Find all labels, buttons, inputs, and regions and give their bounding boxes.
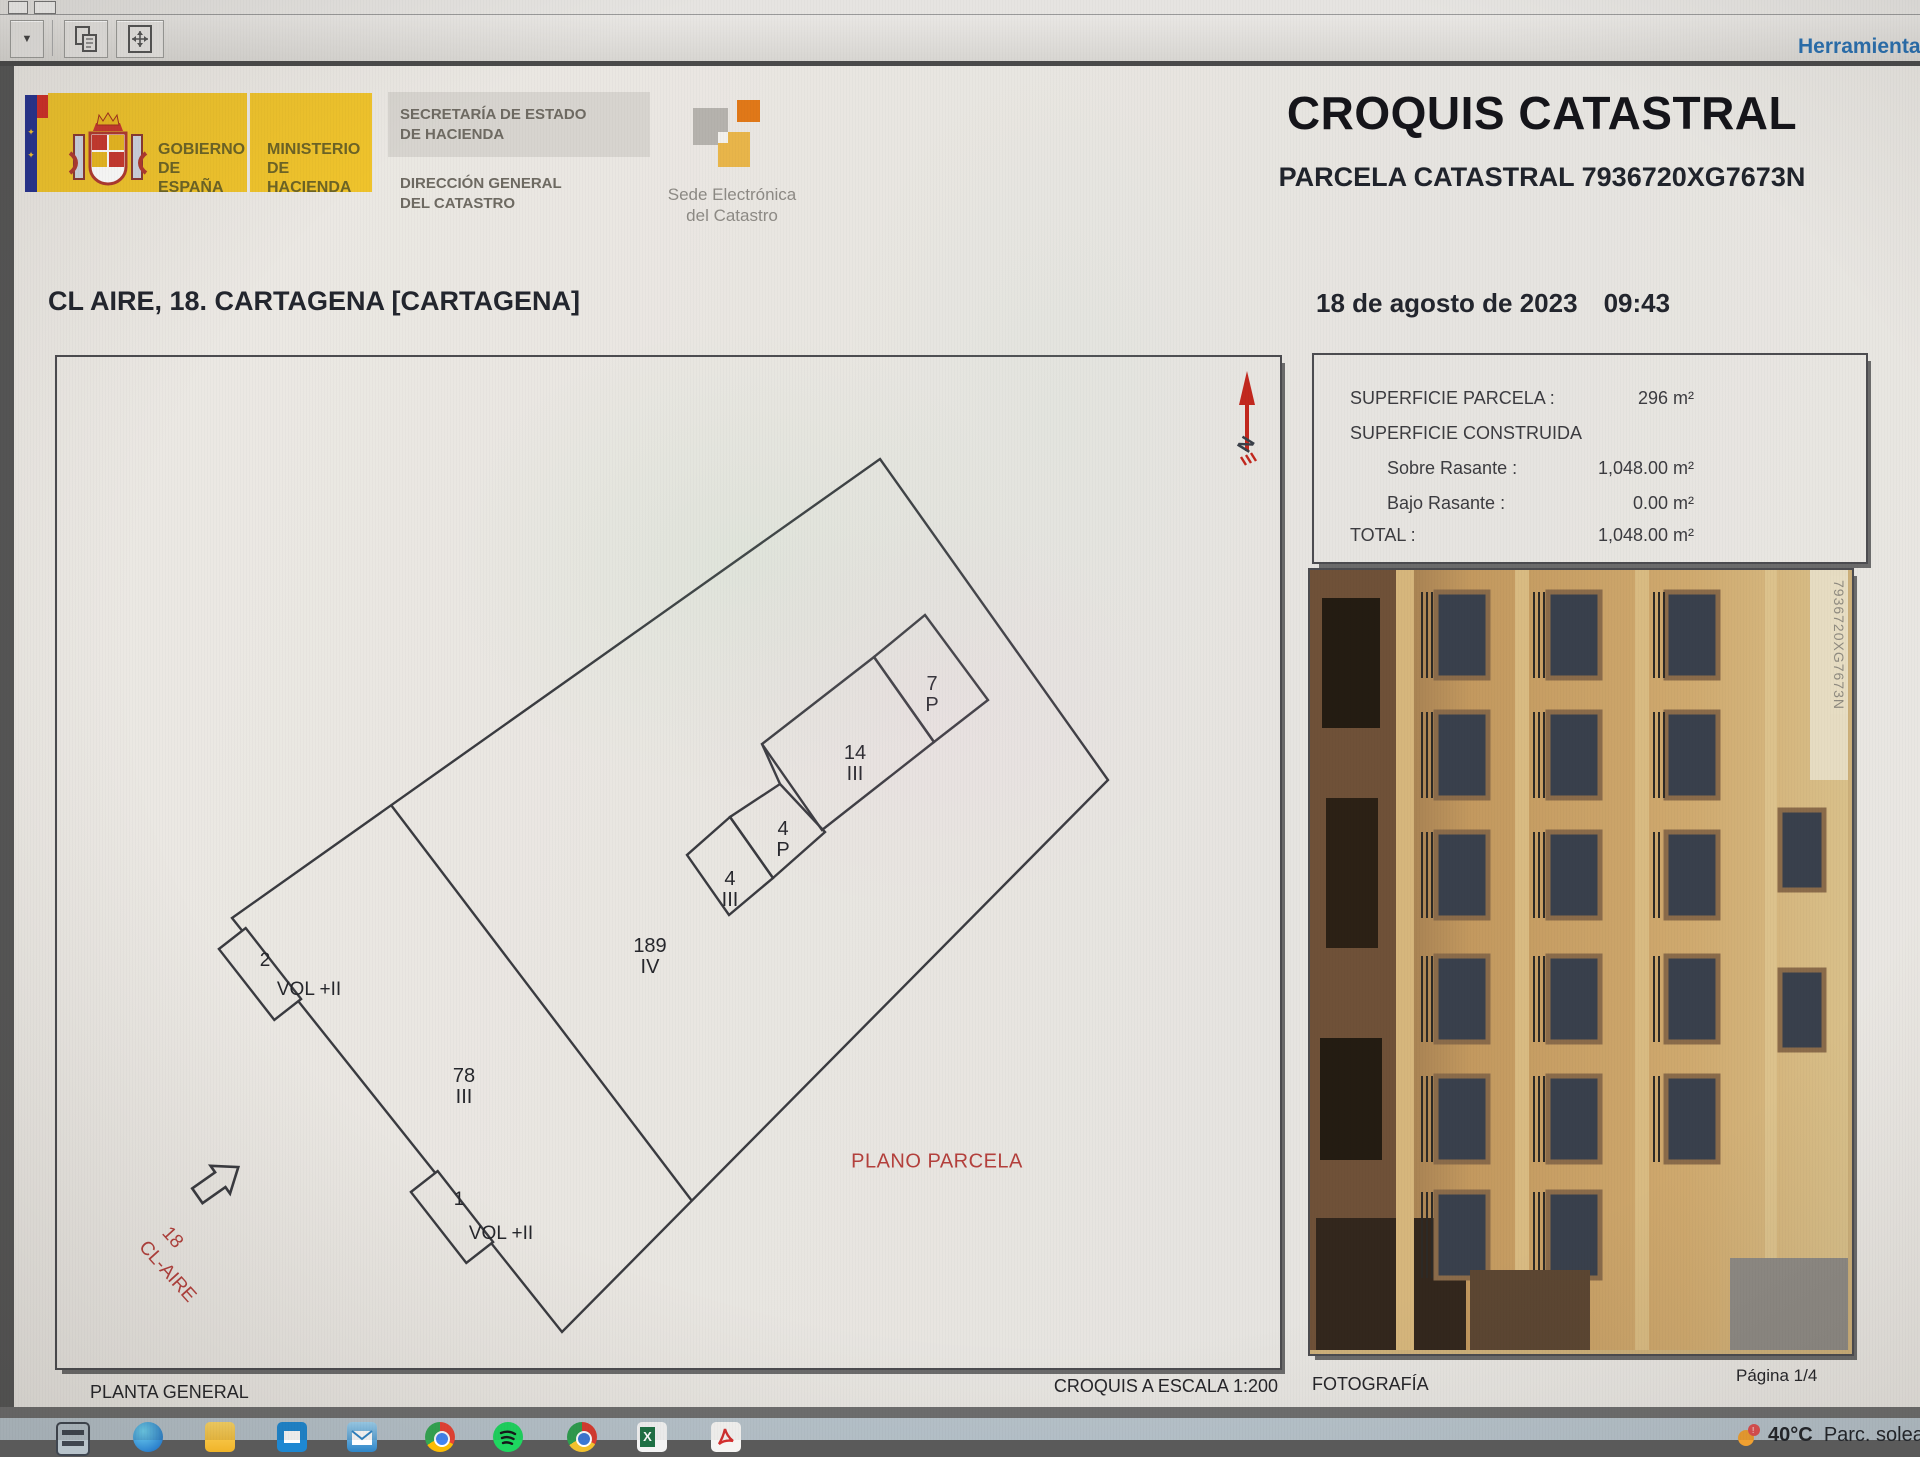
page-scrolling-view-button[interactable]	[64, 20, 108, 58]
fotografia-label: FOTOGRAFÍA	[1312, 1374, 1429, 1395]
surface-info-panel: SUPERFICIE PARCELA : 296 m² SUPERFICIE C…	[1312, 353, 1868, 564]
flag-red-stripe	[37, 95, 48, 118]
document-left-margin	[0, 66, 14, 1408]
scrolling-pages-icon	[72, 25, 100, 53]
herramientas-button[interactable]: Herramientas	[1798, 35, 1920, 59]
page-number: Página 1/4	[1736, 1366, 1817, 1386]
gobierno-panel: GOBIERNODE ESPAÑA	[48, 93, 247, 192]
volume-1-number: 1	[454, 1189, 465, 1211]
background-toolbar-strip	[0, 0, 1920, 15]
bajo-rasante-value: 0.00 m²	[1494, 493, 1694, 514]
edge-browser-icon[interactable]	[133, 1422, 163, 1452]
spain-eu-flag-stripe: ✦✦	[25, 95, 37, 192]
document-title: CROQUIS CATASTRAL	[1164, 86, 1920, 140]
star-icon: ✦	[27, 150, 35, 161]
screen-bottom-strip	[0, 1407, 1920, 1418]
sede-label-line2: del Catastro	[642, 206, 822, 226]
svg-text:!: !	[1752, 1426, 1754, 1435]
plano-parcela-label: PLANO PARCELA	[851, 1151, 1023, 1174]
document-date: 18 de agosto de 2023	[1316, 288, 1578, 318]
total-label: TOTAL :	[1350, 525, 1416, 546]
excel-icon[interactable]: X	[637, 1422, 667, 1452]
fit-page-view-button[interactable]	[116, 20, 164, 58]
volume-1-label: VOL +II	[469, 1223, 533, 1245]
facade-photo	[1310, 570, 1848, 1350]
fit-page-icon	[125, 24, 155, 54]
spotify-icon[interactable]	[493, 1422, 523, 1452]
pdf-toolbar: ▼ Herramientas	[0, 15, 1920, 61]
clipped-icon	[8, 1, 28, 14]
parcel-label-4III: 4 III	[722, 869, 739, 911]
chrome-secondary-icon[interactable]	[567, 1422, 597, 1452]
parcel-plan-drawing	[57, 357, 1280, 1368]
facade-photo-panel: 7936720XG7673N	[1308, 568, 1854, 1356]
document-datetime: 18 de agosto de 202309:43	[1316, 288, 1670, 319]
volume-2-label: VOL +II	[277, 979, 341, 1001]
gobierno-label: GOBIERNODE ESPAÑA	[158, 141, 247, 198]
document-time: 09:43	[1604, 288, 1671, 318]
superficie-parcela-value: 296 m²	[1494, 388, 1694, 409]
parcel-label-14III: 14 III	[844, 743, 866, 785]
sobre-rasante-value: 1,048.00 m²	[1494, 458, 1694, 479]
secretaria-label: SECRETARÍA DE ESTADODE HACIENDA	[400, 105, 586, 144]
file-explorer-icon[interactable]	[205, 1422, 235, 1452]
cadastral-ref-vertical: 7936720XG7673N	[1830, 576, 1848, 714]
flag-yellow-stripe	[37, 118, 48, 192]
planta-general-label: PLANTA GENERAL	[90, 1382, 249, 1403]
direccion-label: DIRECCIÓN GENERALDEL CATASTRO	[400, 174, 562, 213]
sede-label-line1: Sede Electrónica	[642, 185, 822, 205]
bajo-rasante-label: Bajo Rasante :	[1387, 493, 1505, 514]
mail-icon[interactable]	[347, 1422, 377, 1452]
clipped-icon	[34, 1, 56, 14]
pdf-page: ✦✦ GOBIERNODE ESPAÑA MINISTERIODE HACIEN…	[14, 66, 1920, 1407]
task-view-icon[interactable]	[56, 1422, 90, 1456]
weather-temp: 40°C	[1768, 1424, 1813, 1446]
toolbar-separator	[52, 20, 53, 56]
document-subtitle: PARCELA CATASTRAL 7936720XG7673N	[1164, 162, 1920, 193]
total-value: 1,048.00 m²	[1494, 525, 1694, 546]
spain-coat-of-arms-icon	[66, 109, 150, 189]
parcel-label-78III: 78 III	[453, 1066, 475, 1108]
windows-taskbar: X ! 40°C Parc. solea	[0, 1418, 1920, 1440]
toolbar-dropdown-button[interactable]: ▼	[10, 20, 44, 58]
chevron-down-icon: ▼	[22, 33, 33, 45]
superficie-construida-label: SUPERFICIE CONSTRUIDA	[1350, 423, 1582, 444]
star-icon: ✦	[27, 127, 35, 138]
parcel-label-4P: 4 P	[776, 819, 789, 861]
sede-electronica-logo: Sede Electrónica del Catastro	[654, 94, 834, 224]
volume-2-number: 2	[260, 950, 271, 972]
parcel-plan-panel: 7 P 14 III 4 P 4 III 189 IV 78 III 2 VOL…	[55, 355, 1282, 1370]
escala-label: CROQUIS A ESCALA 1:200	[1014, 1376, 1278, 1397]
sede-white-notch	[718, 132, 728, 143]
ministerio-panel: MINISTERIODE HACIENDA	[250, 93, 372, 192]
parcel-label-189IV: 189 IV	[633, 936, 666, 978]
sede-orange-square-icon	[737, 100, 760, 122]
weather-widget[interactable]: 40°C Parc. solea	[1768, 1424, 1920, 1447]
ministerio-label: MINISTERIODE HACIENDA	[267, 141, 372, 198]
secretaria-panel: SECRETARÍA DE ESTADODE HACIENDA	[388, 92, 650, 157]
weather-condition: Parc. solea	[1824, 1424, 1920, 1446]
chrome-icon[interactable]	[425, 1422, 455, 1452]
acrobat-icon[interactable]	[711, 1422, 741, 1452]
microsoft-store-icon[interactable]	[277, 1422, 307, 1452]
weather-icon[interactable]: !	[1736, 1422, 1762, 1448]
property-address: CL AIRE, 18. CARTAGENA [CARTAGENA]	[48, 286, 580, 317]
parcel-label-7P: 7 P	[925, 674, 938, 716]
